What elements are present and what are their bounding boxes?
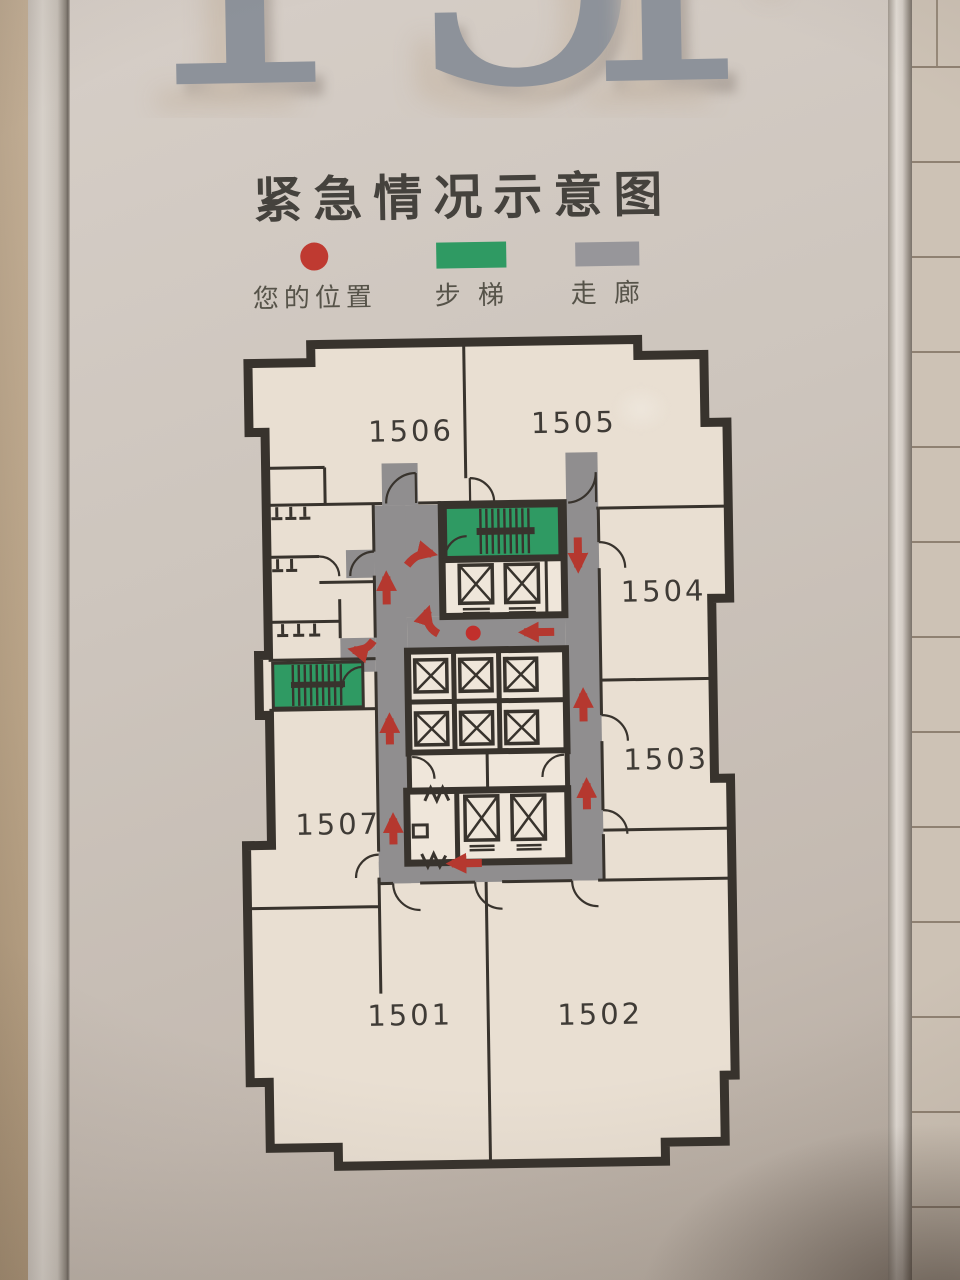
legend: 您的位置 步 梯 走 廊 [0, 233, 955, 328]
corridor-swatch-icon [575, 241, 639, 266]
room-label-1503: 1503 [623, 741, 709, 776]
your-location-dot-icon [300, 242, 328, 270]
room-label-1504: 1504 [620, 573, 706, 608]
legend-item-stairs: 步 梯 [406, 239, 537, 313]
core-elevator-grid [407, 649, 567, 753]
core-service-rooms [409, 751, 568, 791]
room-label-1505: 1505 [531, 405, 617, 440]
elevator [460, 712, 492, 744]
elevator [459, 565, 493, 604]
core-top-block [441, 503, 565, 617]
elevator [460, 659, 492, 691]
elevator [415, 713, 447, 745]
room-label-1501: 1501 [367, 997, 453, 1032]
legend-label: 走 廊 [570, 272, 645, 310]
photo-of-evacuation-sign: 1 5 F 紧急情况示意图 您的位置 步 梯 走 廊 [0, 0, 960, 1280]
room-label-1507: 1507 [295, 807, 381, 842]
legend-label: 您的位置 [253, 277, 378, 316]
stairs-swatch-icon [436, 242, 506, 269]
legend-item-corridor: 走 廊 [542, 237, 673, 311]
elevator [512, 795, 546, 840]
elevator [505, 564, 539, 603]
sign-content: 紧急情况示意图 您的位置 步 梯 走 廊 [0, 0, 960, 1280]
room-label-1502: 1502 [557, 996, 643, 1031]
top-stairwell [445, 506, 560, 558]
core-bottom-block [407, 786, 569, 868]
legend-label: 步 梯 [434, 275, 509, 313]
floor-plan: 1506 1505 1504 1503 1507 1501 1502 [228, 328, 751, 1186]
elevator [415, 660, 447, 692]
sign-title: 紧急情况示意图 [0, 151, 934, 237]
left-stairwell [273, 662, 364, 708]
elevator [505, 658, 537, 690]
panel-smudge [612, 385, 670, 433]
legend-item-your-location: 您的位置 [234, 241, 395, 316]
room-label-1506: 1506 [368, 413, 454, 448]
elevator [505, 711, 537, 743]
elevator [465, 796, 499, 841]
